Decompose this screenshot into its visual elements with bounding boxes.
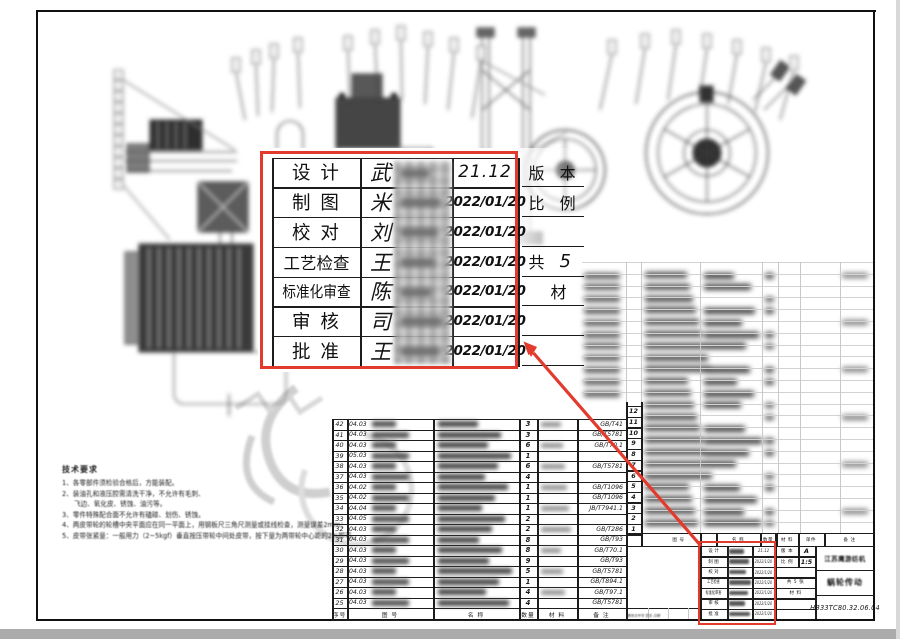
bottom-gray-band (0, 629, 900, 639)
drawing-sheet: 4204.033GB/T414104.033GB/T57814004.036GB… (0, 0, 900, 639)
red-source-box (698, 541, 776, 625)
right-gray-edge (896, 0, 900, 639)
